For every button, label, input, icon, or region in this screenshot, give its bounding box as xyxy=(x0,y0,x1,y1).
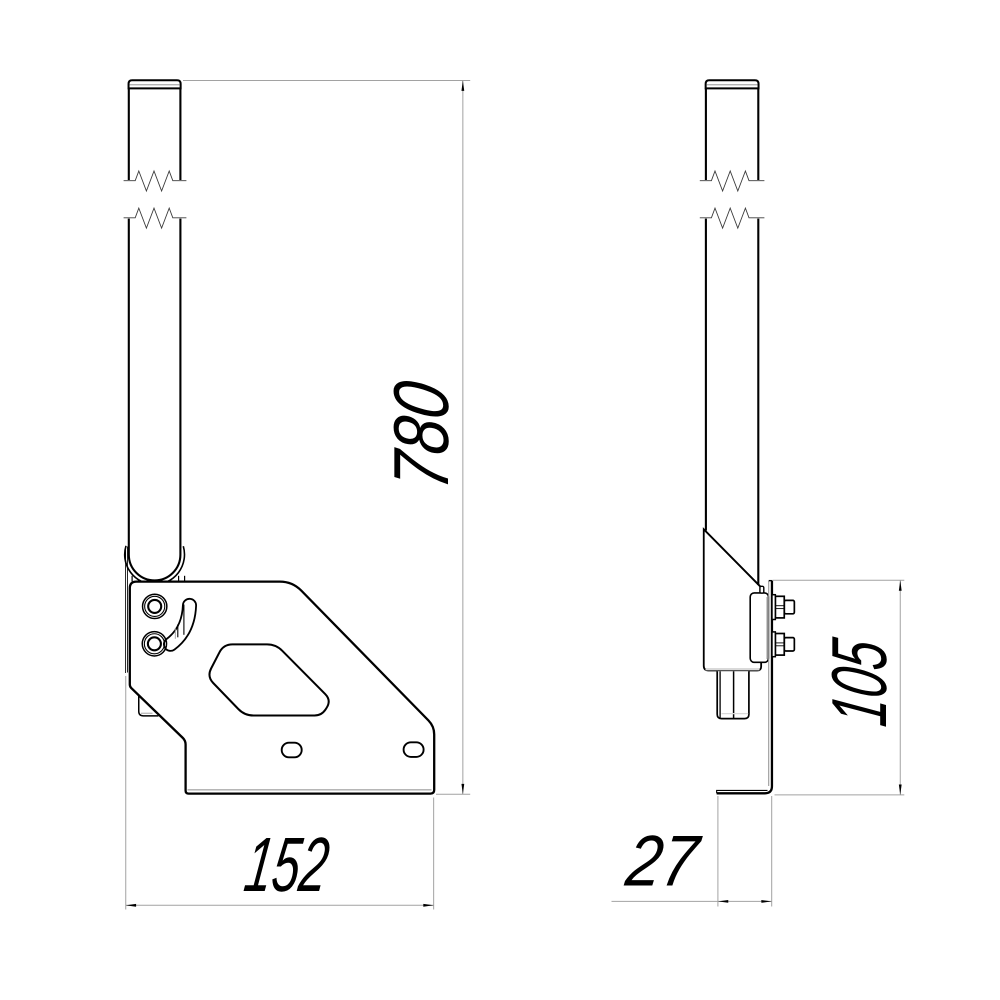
svg-text:152: 152 xyxy=(240,822,334,908)
svg-text:27: 27 xyxy=(621,822,705,902)
svg-text:105: 105 xyxy=(815,634,903,731)
svg-text:780: 780 xyxy=(377,376,465,494)
